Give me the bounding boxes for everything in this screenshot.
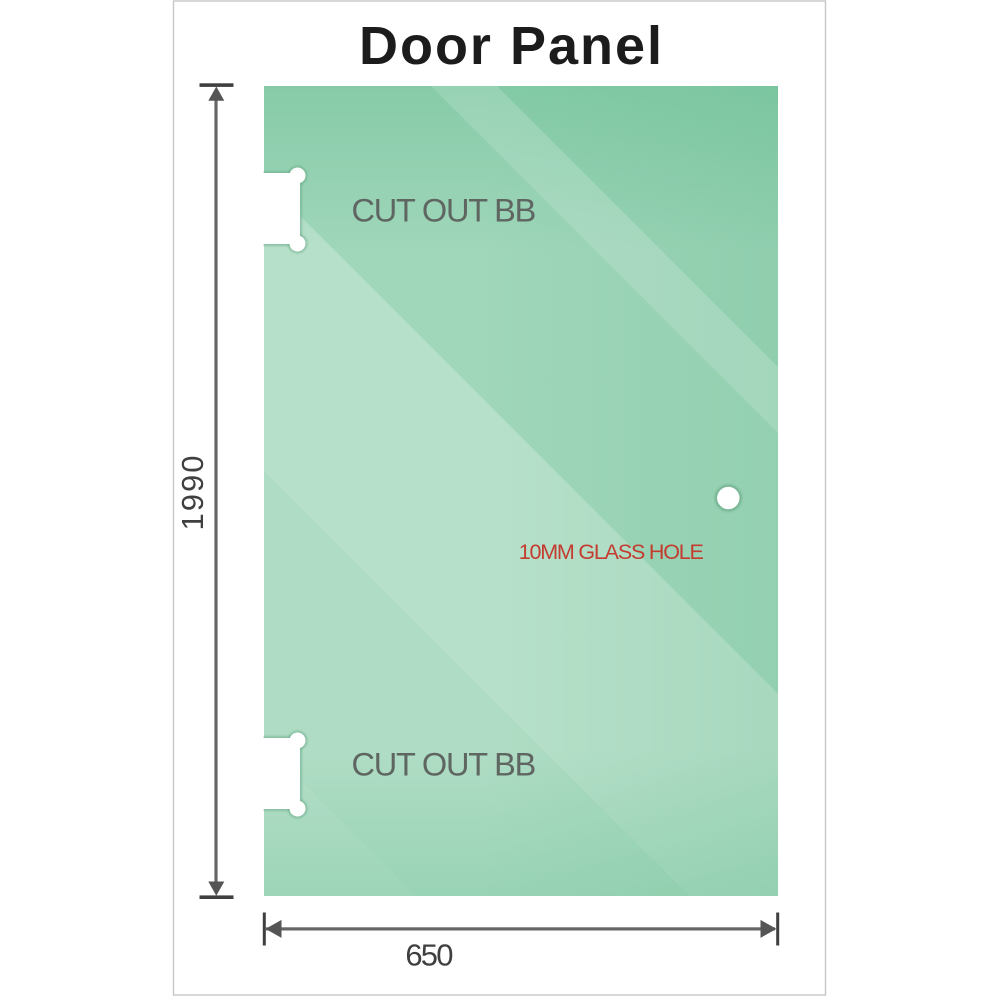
svg-text:650: 650 [405,937,453,972]
svg-text:CUT OUT BB: CUT OUT BB [352,192,536,228]
svg-text:10MM GLASS HOLE: 10MM GLASS HOLE [519,540,704,564]
svg-text:Door Panel: Door Panel [359,16,664,76]
svg-text:1990: 1990 [175,454,210,531]
svg-text:CUT OUT BB: CUT OUT BB [352,746,536,782]
